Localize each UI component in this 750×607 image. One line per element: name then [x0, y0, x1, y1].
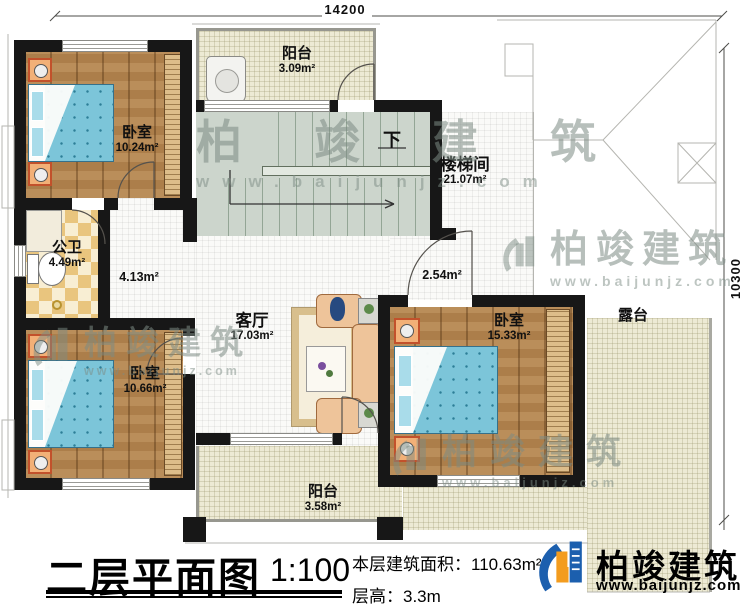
lamp-icon [34, 340, 48, 354]
wall-segment [148, 40, 192, 52]
window [230, 433, 333, 445]
plant-icon [364, 408, 374, 418]
stair-direction-label: 下 [383, 126, 401, 152]
wall-post [183, 517, 206, 542]
lamp-icon [34, 64, 48, 78]
wall-segment [196, 433, 230, 445]
wall-segment [183, 374, 195, 478]
wall-segment [14, 52, 26, 245]
nightstand [394, 318, 420, 344]
wall-segment [104, 198, 118, 210]
floor-area-text: 本层建筑面积：110.63m² [352, 550, 542, 575]
wall-segment [14, 198, 72, 210]
nightstand [394, 436, 420, 462]
floor-height-text: 层高：3.3m [352, 582, 441, 607]
wall-segment [573, 295, 585, 487]
wall-segment [378, 475, 437, 487]
title-underline [46, 590, 342, 598]
wardrobe [546, 309, 570, 473]
wall-segment [14, 478, 62, 490]
sofa [316, 398, 362, 434]
wall-post [377, 517, 403, 540]
bed [394, 346, 498, 434]
corridor-area-left: 4.13m² [119, 270, 159, 284]
wall-segment [333, 433, 342, 445]
wall-segment [520, 475, 585, 487]
room-label-bedroom-topleft: 卧室 10.24m² [116, 125, 159, 154]
wall-segment [180, 52, 192, 198]
wall-segment [14, 40, 62, 52]
stair-lower-run [212, 178, 442, 236]
nightstand [28, 450, 52, 474]
terrace-floor-strip [403, 487, 587, 530]
floor-plan: 阳台 3.09m² 卧室 10.24m² 楼梯间 21.07m² 公卫 4.49… [0, 0, 750, 607]
wall-segment [14, 318, 195, 330]
wall-segment [14, 277, 26, 478]
wall-segment [430, 228, 456, 240]
bed [28, 360, 114, 448]
nightstand [28, 162, 52, 186]
window [437, 475, 520, 487]
lamp-icon [400, 324, 414, 338]
flower-decor [326, 370, 333, 377]
dimension-right: 10300 [728, 258, 743, 299]
wall-segment [378, 307, 390, 475]
window [62, 478, 150, 490]
room-label-stairwell: 楼梯间 21.07m² [440, 156, 490, 187]
room-label-bedroom-bottomleft: 卧室 10.66m² [124, 366, 167, 395]
lamp-icon [34, 168, 48, 182]
lamp-icon [400, 442, 414, 456]
washer-drum-icon [215, 69, 239, 93]
wall-post [183, 198, 197, 242]
wardrobe [164, 332, 182, 476]
wall-segment [183, 330, 195, 336]
plant-icon [364, 304, 374, 314]
room-label-bedroom-right: 卧室 15.33m² [488, 313, 531, 342]
room-label-bathroom: 公卫 4.49m² [49, 240, 85, 269]
chimney-box [678, 143, 716, 183]
wall-segment [378, 295, 408, 307]
brand-logo-icon [534, 536, 592, 603]
flower-decor [318, 362, 326, 370]
window [62, 40, 148, 52]
brand-website: www.baijunjz.com [596, 577, 741, 594]
dimension-top: 14200 [324, 2, 365, 17]
washing-machine [206, 56, 246, 104]
lamp-icon [34, 456, 48, 470]
window [204, 100, 330, 112]
person-figure [330, 297, 345, 321]
wall-segment [98, 210, 110, 318]
wall-segment [150, 478, 195, 490]
wall-segment [374, 100, 430, 112]
room-label-livingroom: 客厅 17.03m² [231, 312, 274, 343]
wall-segment [330, 100, 338, 112]
corridor-area-right: 2.54m² [422, 268, 462, 282]
coffee-table [306, 346, 346, 392]
nightstand [28, 334, 52, 358]
stair-railing [262, 166, 440, 176]
room-label-terrace: 露台 [618, 308, 648, 325]
floor-drain-icon [52, 300, 62, 310]
window [14, 245, 26, 277]
nightstand [28, 58, 52, 82]
bed [28, 84, 114, 162]
wall-segment [196, 100, 204, 112]
plan-scale: 1:100 [270, 552, 350, 589]
room-label-balcony-bottom: 阳台 3.58m² [305, 484, 341, 513]
room-label-balcony-top: 阳台 3.09m² [279, 46, 315, 75]
stair-upper-run [262, 112, 442, 166]
wall-segment [472, 295, 585, 307]
balcony-bottom-floor [196, 446, 402, 522]
